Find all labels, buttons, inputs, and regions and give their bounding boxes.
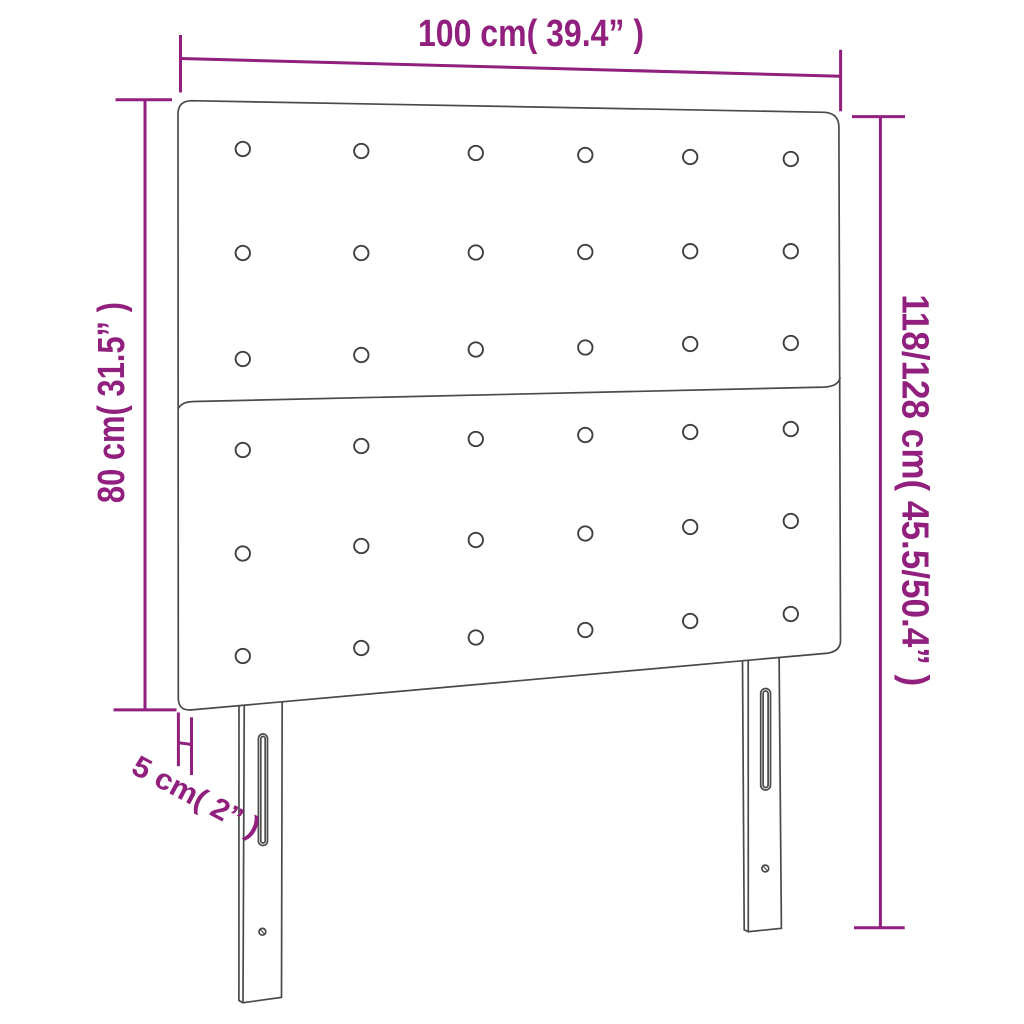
svg-text:100 cm( 39.4” ): 100 cm( 39.4” ) (418, 13, 644, 55)
svg-text:118/128 cm( 45.5/50.4” ): 118/128 cm( 45.5/50.4” ) (893, 294, 935, 686)
svg-text:80 cm( 31.5” ): 80 cm( 31.5” ) (91, 302, 133, 503)
